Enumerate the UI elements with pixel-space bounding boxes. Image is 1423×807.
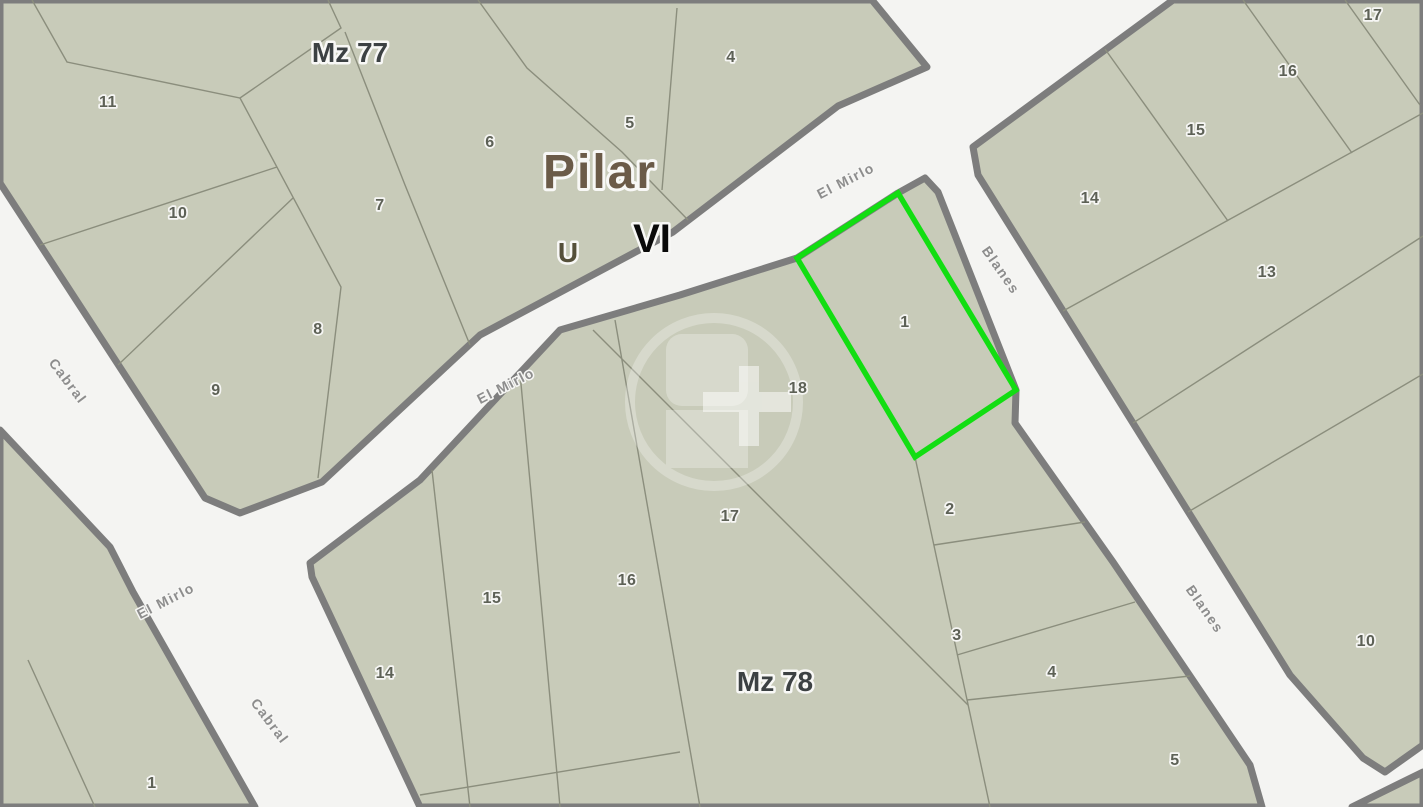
- lot-label-mz77-7: 7: [375, 197, 384, 214]
- lot-label-ne-15: 15: [1187, 122, 1206, 139]
- lot-label-mz78-3: 3: [952, 627, 961, 644]
- lot-label-mz77-8: 8: [313, 321, 322, 338]
- block-label-mz77: Mz 77: [312, 37, 388, 68]
- lot-label-mz78-17: 17: [721, 508, 740, 525]
- lot-label-ne-17: 17: [1364, 7, 1383, 24]
- lot-label-mz77-4: 4: [726, 49, 735, 66]
- lot-label-ne-10: 10: [1357, 633, 1376, 650]
- highlighted-lot-label: 1: [900, 314, 909, 331]
- block-label-mz78: Mz 78: [737, 666, 813, 697]
- lot-label-ne-14: 14: [1081, 190, 1100, 207]
- lot-label-mz78-15: 15: [483, 590, 502, 607]
- lot-label-mz77-11: 11: [99, 94, 117, 111]
- cadastral-map: Mz 77 Mz 78 Pilar VI U 11 10 9 8 7 6 5 4…: [0, 0, 1423, 807]
- lot-label-mz78-18: 18: [789, 380, 808, 397]
- lot-label-mz78-14: 14: [376, 665, 395, 682]
- lot-label-mz78-16: 16: [618, 572, 637, 589]
- city-label: Pilar: [543, 146, 657, 199]
- map-canvas[interactable]: Mz 77 Mz 78 Pilar VI U 11 10 9 8 7 6 5 4…: [0, 0, 1423, 807]
- lot-label-sw-1: 1: [147, 775, 156, 792]
- lot-label-ne-16: 16: [1279, 63, 1298, 80]
- lot-label-mz77-6: 6: [485, 134, 494, 151]
- lot-label-mz77-5: 5: [625, 115, 634, 132]
- lot-label-mz78-4: 4: [1047, 664, 1056, 681]
- zone-label: VI: [633, 217, 671, 261]
- lot-label-mz78-2: 2: [945, 501, 954, 518]
- subzone-label: U: [558, 237, 578, 268]
- lot-label-ne-13: 13: [1258, 264, 1277, 281]
- lot-label-mz77-9: 9: [211, 382, 220, 399]
- lot-label-mz77-10: 10: [169, 205, 188, 222]
- lot-label-mz78-5: 5: [1170, 752, 1179, 769]
